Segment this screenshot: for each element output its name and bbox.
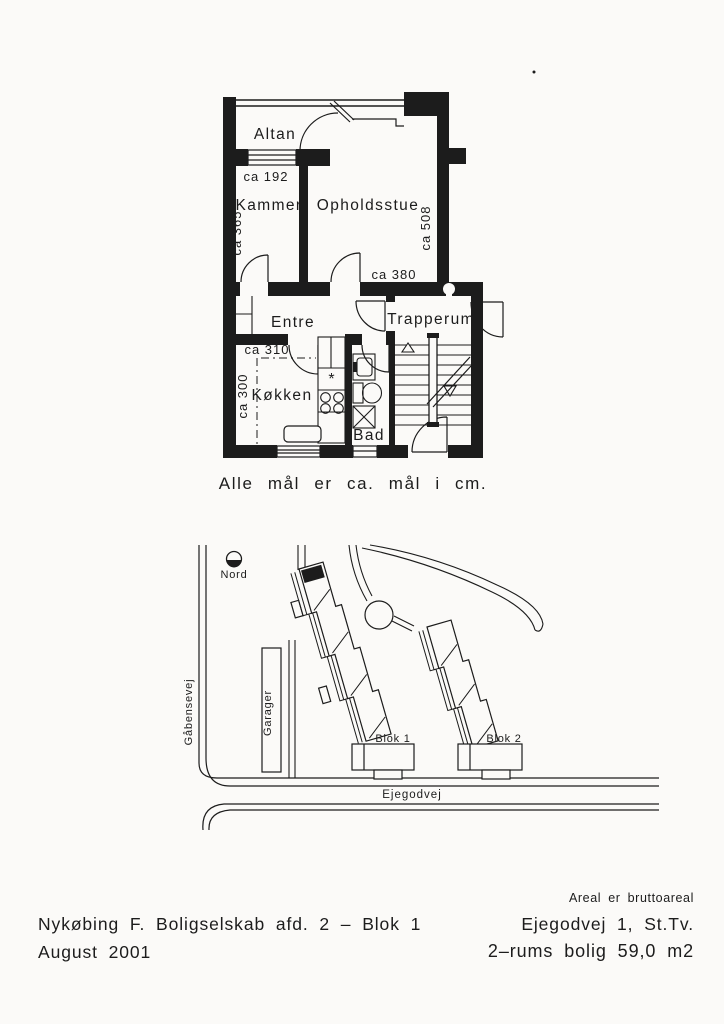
block1-base [352,744,414,779]
street-label-gabensevej: Gåbensevej [183,679,195,746]
kitchen-counter [318,337,345,443]
radiator [284,426,321,442]
measure-altan-window: ca 192 [243,169,288,184]
room-label-trapperum: Trapperum [387,311,475,328]
block1-building [283,557,391,750]
balcony-door [300,101,404,151]
room-label-entre: Entre [271,314,315,331]
toilet-tank [353,383,363,403]
scanned-floorplan-document: * Altan Kammer Ophold [0,0,724,1024]
measure-kammer-depth: ca 365 [229,210,244,255]
measure-opholdsstue-depth: ca 508 [418,205,433,250]
courtyard-circle [365,601,393,629]
footer-date-line: August 2001 [38,942,151,962]
staircase [395,333,471,427]
footer: Nykøbing F. Boligselskab afd. 2 – Blok 1… [38,891,694,962]
balcony-railing [236,100,404,106]
measure-kokken-width: ca 310 [244,342,289,357]
scale-caption: Alle mål er ca. mål i cm. [219,474,487,493]
room-label-opholdsstue: Opholdsstue [317,197,419,214]
block2-base [458,744,522,779]
site-plan: Nord [183,545,659,830]
room-label-kammer: Kammer [236,197,303,214]
measure-kokken-depth: ca 300 [235,373,250,418]
garages-label: Garager [262,690,274,736]
room-label-bad: Bad [353,427,385,444]
toilet-bowl [363,383,382,403]
kitchen-sink-symbol: * [328,371,334,388]
block2-label: Blok 2 [486,733,521,745]
block1-label: Blok 1 [375,733,410,745]
measure-opholdsstue-width: ca 380 [371,267,416,282]
stairwell-column [443,283,455,302]
north-label: Nord [220,569,247,581]
floor-plan: * Altan Kammer Ophold [223,92,503,458]
room-label-altan: Altan [254,126,296,143]
scan-dot [533,71,536,74]
bathroom-fixtures [353,354,382,428]
street-label-ejegodvej: Ejegodvej [382,789,442,801]
entre-closet [236,296,252,334]
footer-company-line: Nykøbing F. Boligselskab afd. 2 – Blok 1 [38,914,421,934]
stairs-up-arrow-icon [402,343,414,352]
room-label-kokken: Køkken [252,387,313,404]
footer-area-note: Areal er bruttoareal [569,891,694,905]
footer-address: Ejegodvej 1, St.Tv. [521,914,694,934]
altan-window [248,150,296,165]
drawing-canvas: * Altan Kammer Ophold [0,0,724,1024]
footer-unit-info: 2–rums bolig 59,0 m2 [488,941,694,961]
north-indicator: Nord [220,552,247,582]
